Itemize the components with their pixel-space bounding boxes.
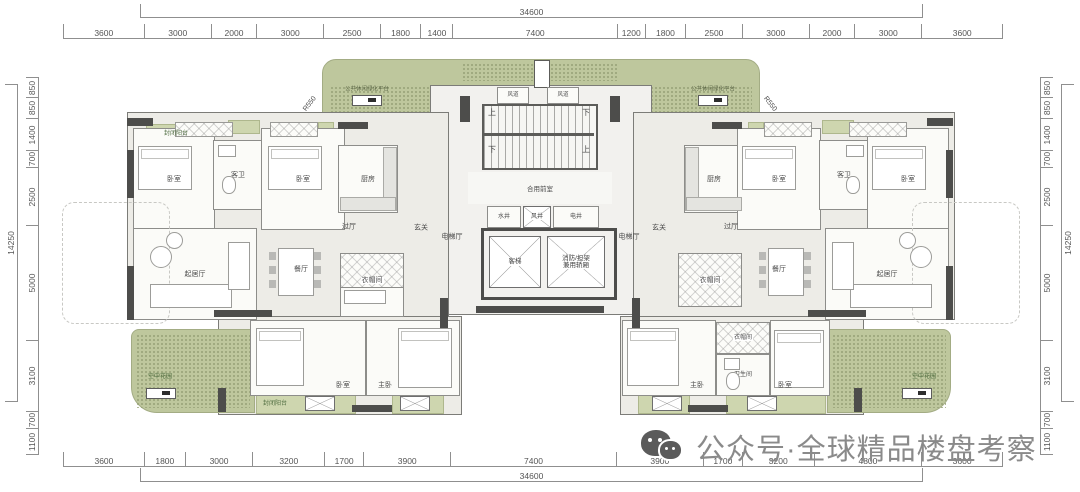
- armchair-icon: [150, 246, 172, 268]
- sky-garden-right: 空中花园: [827, 329, 951, 413]
- dimension-segment: 2000: [810, 24, 855, 38]
- wall-segment: [127, 266, 134, 320]
- kitchen-counter: [686, 197, 742, 211]
- room-label: 衣帽间: [733, 335, 753, 341]
- shared-lobby-label: 合用前室: [527, 187, 553, 194]
- platform-area-box-left: [352, 95, 382, 106]
- dimension-value: 1800: [391, 29, 410, 38]
- room-label: 厨房: [361, 176, 375, 183]
- watermark-text: 公众号·全球精品楼盘考察: [696, 426, 1037, 468]
- dimension-value: 700: [1043, 413, 1052, 427]
- dimension-value: 850: [1043, 81, 1052, 95]
- dimension-value: 3900: [398, 457, 417, 466]
- dimension-value: 1100: [1043, 432, 1052, 450]
- top-dimension-strip: 3600300020003000250018001400740012001800…: [63, 24, 1003, 39]
- ac-unit-icon: [747, 396, 777, 411]
- wall-segment: [218, 388, 226, 412]
- dimension-segment: 3100: [1041, 340, 1053, 411]
- dimension-segment: 3200: [253, 452, 325, 466]
- dimension-value: 1400: [427, 29, 446, 38]
- dimension-value: 1100: [28, 432, 37, 450]
- dining-chairs-icon: [269, 252, 276, 290]
- dimension-segment: 7400: [453, 24, 618, 38]
- balcony-label: 封闭阳台: [263, 401, 287, 407]
- dimension-segment: 700: [26, 411, 38, 428]
- dimension-segment: 2500: [686, 24, 742, 38]
- wardrobe-strip: [849, 122, 907, 137]
- elevator-hall-label-right: 电梯厅: [619, 234, 640, 241]
- dimension-segment: 850: [1041, 77, 1053, 97]
- dimension-segment: 700: [1041, 150, 1053, 167]
- garden-area-box-right: [902, 388, 932, 399]
- dimension-segment: 850: [1041, 97, 1053, 117]
- wall-segment: [127, 150, 134, 198]
- walkin-closet: 衣帽间: [716, 322, 770, 354]
- room-label: 水井: [498, 214, 510, 220]
- dining-chairs-icon: [804, 252, 811, 290]
- platform-area-box-right: [698, 95, 728, 106]
- dimension-value: 5000: [28, 273, 37, 292]
- wall-segment: [854, 388, 862, 412]
- dimension-segment: 7400: [451, 452, 616, 466]
- dimension-value: 700: [1043, 152, 1052, 166]
- sofa-icon: [832, 242, 854, 290]
- wall-segment: [610, 96, 620, 122]
- wall-segment: [352, 405, 392, 412]
- hallway-label: 过厅: [342, 224, 356, 231]
- dimension-value: 1200: [622, 29, 641, 38]
- elevator-label-line2: 兼用轿厢: [563, 262, 589, 269]
- room-label: 卧室: [772, 176, 786, 183]
- dining-chairs-icon: [314, 252, 321, 290]
- passenger-elevator: 客梯: [489, 236, 541, 288]
- dimension-segment: 3600: [63, 24, 145, 38]
- elevator-hall-label-left: 电梯厅: [442, 234, 463, 241]
- room-label: 餐厅: [294, 266, 308, 273]
- sink-icon: [724, 358, 740, 370]
- dimension-segment: 3900: [364, 452, 451, 466]
- roof-duct: [534, 60, 550, 88]
- wall-segment: [946, 150, 953, 198]
- room-label: 风井: [530, 214, 544, 221]
- bed-icon: [742, 146, 796, 190]
- elevator-label-line1: 消防/担架: [562, 255, 590, 262]
- dimension-segment: 1100: [26, 428, 38, 455]
- bed-icon: [398, 328, 452, 388]
- hallway-label: 过厅: [724, 224, 738, 231]
- wall-segment: [127, 118, 153, 126]
- bed-icon: [138, 146, 192, 190]
- dimension-segment: 3100: [26, 340, 38, 411]
- sofa-icon: [228, 242, 250, 290]
- dimension-segment: 34600: [140, 4, 923, 17]
- toilet-icon: [846, 176, 860, 194]
- dimension-segment: 1100: [1041, 428, 1053, 455]
- room-label: 卧室: [778, 382, 792, 389]
- dimension-value: 3100: [1043, 366, 1052, 385]
- toilet-icon: [726, 372, 740, 390]
- dimension-segment: 3600: [922, 24, 1003, 38]
- left-dimension-strip: 85085014007002500500031007001100: [26, 77, 39, 455]
- foyer-label: 玄关: [652, 225, 666, 232]
- room-label: 卧室: [336, 382, 350, 389]
- dimension-value: 2000: [225, 29, 244, 38]
- wall-segment: [712, 122, 742, 129]
- room-label: 电井: [570, 214, 582, 220]
- dimension-segment: 700: [1041, 411, 1053, 428]
- dimension-segment: 3000: [257, 24, 324, 38]
- toilet-icon: [222, 176, 236, 194]
- dimension-value: 2500: [1043, 187, 1052, 206]
- dimension-value: 2500: [704, 29, 723, 38]
- vanity-icon: [344, 290, 386, 304]
- dimension-segment: 5000: [26, 225, 38, 340]
- dimension-segment: 2000: [212, 24, 257, 38]
- dimension-segment: 3000: [855, 24, 922, 38]
- air-duct: 风道: [547, 87, 579, 104]
- dining-room: 餐厅: [733, 228, 825, 310]
- dimension-segment: 1800: [145, 452, 186, 466]
- wechat-bubble-small: [660, 441, 681, 459]
- sink-icon: [218, 145, 236, 157]
- left-total-dimension: 14250: [5, 84, 18, 402]
- dimension-segment: 1800: [381, 24, 422, 38]
- dimension-value: 7400: [526, 29, 545, 38]
- bed-icon: [268, 146, 322, 190]
- ac-unit-icon: [400, 396, 430, 411]
- dimension-value: 700: [28, 413, 37, 427]
- sofa-icon: [850, 284, 932, 308]
- platform-label-right: 公共休闲绿化平台: [691, 87, 735, 93]
- dimension-segment: 5000: [1041, 225, 1053, 340]
- armchair-icon: [166, 232, 183, 249]
- top-total-dimension: 34600: [140, 4, 923, 18]
- dimension-value: 1400: [1043, 125, 1052, 144]
- room-label: 主卧: [690, 382, 704, 389]
- dimension-segment: 850: [26, 97, 38, 117]
- dimension-segment: 700: [26, 150, 38, 167]
- dimension-value: 3600: [953, 29, 972, 38]
- dimension-value: 1800: [155, 457, 174, 466]
- dimension-segment: 2500: [26, 167, 38, 225]
- dimension-segment: 1400: [26, 118, 38, 151]
- dimension-value: 850: [28, 81, 37, 95]
- bed-icon: [872, 146, 926, 190]
- dimension-segment: 3000: [743, 24, 810, 38]
- stair-landing-divider: [482, 133, 594, 136]
- dimension-value: 3000: [281, 29, 300, 38]
- dimension-value: 3000: [168, 29, 187, 38]
- dimension-value: 3000: [210, 457, 229, 466]
- room-label: 起居厅: [185, 271, 206, 278]
- dimension-segment: 3600: [63, 452, 145, 466]
- garden-area-box-left: [146, 388, 176, 399]
- platform-label-left: 公共休闲绿化平台: [345, 87, 389, 93]
- right-total-dimension: 14250: [1061, 84, 1074, 402]
- wall-segment: [946, 266, 953, 320]
- wall-segment: [808, 310, 866, 317]
- dimension-value: 14250: [7, 231, 16, 255]
- dimension-segment: 1200: [618, 24, 646, 38]
- room-label: 风道: [557, 93, 568, 99]
- room-label: 卧室: [167, 176, 181, 183]
- wall-segment: [338, 122, 368, 129]
- dimension-segment: 34600: [140, 468, 923, 481]
- room-label: 风道: [507, 93, 518, 99]
- dimension-segment: 850: [26, 77, 38, 97]
- dimension-value: 3000: [766, 29, 785, 38]
- room-label: 卧室: [296, 176, 310, 183]
- wardrobe-strip: [764, 122, 812, 137]
- wall-segment: [688, 405, 728, 412]
- dimension-value: 14250: [1064, 231, 1073, 255]
- air-duct: 风道: [497, 87, 529, 104]
- dimension-segment: 2500: [1041, 167, 1053, 225]
- foyer-label: 玄关: [414, 225, 428, 232]
- room-label: 卧室: [901, 176, 915, 183]
- room-label: 主卧: [378, 382, 392, 389]
- elevator-label: 消防/担架兼用轿厢: [561, 255, 591, 270]
- fire-elevator: 消防/担架兼用轿厢: [547, 236, 605, 288]
- room-label: 衣帽间: [699, 277, 722, 284]
- dimension-value: 3000: [879, 29, 898, 38]
- bed-icon: [256, 328, 304, 386]
- floorplan-canvas: 34600 3600300020003000250018001400740012…: [0, 0, 1080, 492]
- dimension-segment: 1400: [421, 24, 453, 38]
- radius-label-left: R550: [302, 95, 318, 112]
- room-label: 餐厅: [772, 266, 786, 273]
- room-label: 起居厅: [877, 271, 898, 278]
- dimension-value: 1800: [656, 29, 675, 38]
- armchair-icon: [899, 232, 916, 249]
- dimension-value: 34600: [520, 472, 544, 481]
- dimension-value: 5000: [1043, 273, 1052, 292]
- dimension-value: 2500: [343, 29, 362, 38]
- stair-up-label: 上: [582, 146, 590, 154]
- dimension-segment: 1800: [646, 24, 687, 38]
- electric-shaft: 电井: [553, 206, 599, 228]
- armchair-icon: [910, 246, 932, 268]
- right-dimension-strip: 85085014007002500500031007001100: [1040, 77, 1053, 455]
- stair-down-label: 下: [488, 146, 496, 154]
- room-label: 衣帽间: [361, 277, 384, 284]
- dimension-value: 3600: [94, 457, 113, 466]
- stair-up-label: 上: [488, 109, 496, 117]
- dimension-value: 2500: [28, 187, 37, 206]
- scissor-stairs: [482, 104, 598, 170]
- water-shaft: 水井: [487, 206, 521, 228]
- balcony-label: 封闭阳台: [164, 131, 188, 137]
- dimension-value: 2000: [823, 29, 842, 38]
- bed-icon: [774, 330, 824, 388]
- dimension-segment: 1700: [325, 452, 364, 466]
- wall-segment: [927, 118, 953, 126]
- room-label: 厨房: [707, 176, 721, 183]
- dimension-value: 7400: [524, 457, 543, 466]
- sky-garden-left: 空中花园: [131, 329, 255, 413]
- dimension-value: 3600: [94, 29, 113, 38]
- ac-unit-icon: [305, 396, 335, 411]
- wall-segment: [214, 310, 272, 317]
- stair-down-label: 下: [582, 109, 590, 117]
- dimension-segment: 14250: [1062, 84, 1074, 402]
- wechat-icon: [641, 430, 687, 464]
- vent-shaft: 风井: [523, 206, 551, 228]
- elevator-label: 客梯: [508, 258, 523, 265]
- dimension-value: 3100: [28, 366, 37, 385]
- dimension-value: 850: [28, 101, 37, 115]
- ac-unit-icon: [652, 396, 682, 411]
- dimension-value: 3200: [279, 457, 298, 466]
- dimension-value: 700: [28, 152, 37, 166]
- wall-segment: [476, 306, 604, 313]
- kitchen-counter: [340, 197, 396, 211]
- garden-label: 空中花园: [148, 374, 172, 380]
- dimension-segment: 1400: [1041, 118, 1053, 151]
- dimension-segment: 3000: [145, 24, 212, 38]
- dimension-segment: 14250: [5, 84, 17, 402]
- dimension-segment: 2500: [324, 24, 380, 38]
- bed-icon: [627, 328, 679, 386]
- sink-icon: [846, 145, 864, 157]
- dining-chairs-icon: [759, 252, 766, 290]
- wardrobe-strip: [270, 122, 318, 137]
- dimension-segment: 3000: [186, 452, 254, 466]
- wall-segment: [460, 96, 470, 122]
- sofa-icon: [150, 284, 232, 308]
- dimension-value: 850: [1043, 101, 1052, 115]
- radius-label-right: R550: [762, 95, 778, 112]
- garden-label: 空中花园: [912, 374, 936, 380]
- dimension-value: 1700: [335, 457, 354, 466]
- dimension-value: 1400: [28, 125, 37, 144]
- bottom-total-dimension: 34600: [140, 468, 923, 482]
- dimension-value: 34600: [520, 8, 544, 17]
